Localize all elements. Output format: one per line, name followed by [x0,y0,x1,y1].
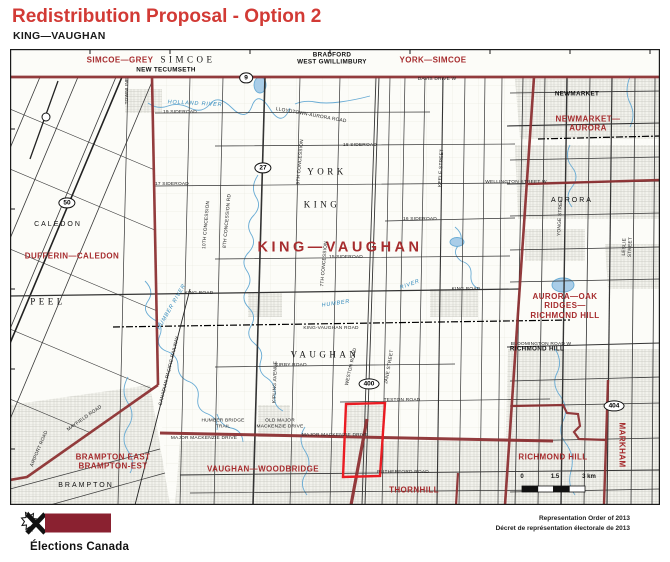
map-road-label: OLD MAJOR MACKENZIE DRIVE [257,418,304,429]
region-label-king: KING [304,200,341,211]
page-subtitle: KING—VAUGHAN [13,30,106,42]
highway-shield-27: 27 [254,162,271,173]
map-road-label: KING-VAUGHAN ROAD [303,326,358,332]
map-road-label: HUMBER BRIDGE TRAIL [201,418,244,429]
town-label-bradford-west-gwillimbury: BRADFORD WEST GWILLIMBURY [297,52,367,67]
district-label-king-vaughan: KING—VAUGHAN [258,239,423,256]
map-road-label: JANE STREET [384,349,396,384]
map-road-label: BLOOMINGTON ROAD W [511,342,572,348]
district-label-markham: MARKHAM [617,422,626,467]
map-road-label: 16 SIDEROAD [403,217,437,223]
map-road-label: AIRPORT ROAD [30,430,50,468]
credit-line-en: Representation Order of 2013 [496,514,630,524]
map-road-label: 9TH CONCESSION [296,139,306,185]
scale-bar-label: 1.5 [551,474,559,480]
scale-bar-label: 3 km [582,474,596,480]
credit-line-fr: Décret de représentation électorale de 2… [496,524,630,534]
map-road-label: KIPLING AVENUE [272,361,279,403]
town-label-caledon: CALEDON [34,221,82,229]
region-label-vaughan: VAUGHAN [291,350,360,361]
map-road-label: 19 SIDEROAD [163,110,197,116]
highway-shield-9: 9 [239,72,253,83]
map-road-label: YONGE STREET [557,196,565,236]
map-road-label: DAVIS DRIVE W [418,77,457,83]
map-road-label: MAJOR MACKENZIE DRIVE [302,433,368,439]
map-road-label: 17 SIDEROAD [155,182,189,188]
map-road-label: KIRBY ROAD [275,363,307,369]
map-road-label: RUTHERFORD ROAD [377,470,429,476]
map-road-label: WESTON ROAD [345,348,359,387]
map-road-label: 8TH CONCESSION RD [223,194,233,249]
map-road-label: WELLINGTON STREET W [485,180,546,186]
region-label-peel: PEEL [30,297,66,308]
district-label-simcoe-grey: SIMCOE—GREY [87,55,154,64]
scale-bar-label: 0 [520,474,523,480]
map-road-label: CANADIAN PACIFIC RAILWAY [159,336,182,407]
elections-canada-logo-mark [14,511,118,536]
map-labels-layer: SIMCOE—GREYYORK—SIMCOEDUFFERIN—CALEDONNE… [10,49,660,505]
town-label-richmond-hill-black: RICHMOND HILL [510,345,564,352]
town-label-aurora: AURORA [551,197,593,205]
town-label-brampton: BRAMPTON [58,482,114,490]
highway-shield-50: 50 [58,197,75,208]
town-label-newmarket: NEWMARKET [555,90,599,97]
region-label-simcoe: SIMCOE [160,55,215,66]
map-road-label: MAYFIELD ROAD [66,405,103,433]
map-road-label: KING ROAD [452,287,481,293]
district-label-brampton-east: BRAMPTON EAST BRAMPTON-EST [76,453,151,472]
district-label-york-simcoe: YORK—SIMCOE [399,55,466,64]
district-label-newmarket-aurora: NEWMARKET— AURORA [556,115,621,134]
district-label-thornhill: THORNHILL [389,485,439,494]
district-label-vaughan-woodbridge: VAUGHAN—WOODBRIDGE [207,464,319,473]
map-road-label: 15 SIDEROAD [329,255,363,261]
water-label-humber-river: HUMBER RIVER [156,283,188,331]
town-label-new-tecumseth: NEW TECUMSETH [136,66,196,73]
map-road-label: KEELE STREET [438,149,446,187]
page-title: Redistribution Proposal - Option 2 [12,6,321,28]
highway-shield-404: 404 [604,400,625,411]
map-road-label: LESLIE STREET [622,231,635,264]
elections-canada-logo: Élections Canada [14,511,129,553]
water-label-river: RIVER [399,278,421,291]
map-canvas: SIMCOE—GREYYORK—SIMCOEDUFFERIN—CALEDONNE… [10,49,660,505]
document-page: Redistribution Proposal - Option 2 KING—… [0,0,670,562]
map-credits: Representation Order of 2013 Décret de r… [496,514,630,535]
water-label-humber: HUMBER [321,299,350,309]
logo-flag-bar [45,514,111,533]
map-road-label: 7TH CONCESSION [320,241,330,287]
water-label-holland-river: HOLLAND RIVER [168,99,223,108]
map-road-label: LLOYDTOWN-AURORA ROAD [275,107,346,125]
elections-canada-logo-text: Élections Canada [30,541,129,553]
district-label-aurora-oak-ridges-richmond-hill: AURORA—OAK RIDGES— RICHMOND HILL [518,292,613,320]
map-road-label: 18 SIDEROAD [343,143,377,149]
district-label-dufferin-caledon: DUFFERIN—CALEDON [25,251,119,260]
ballot-x-icon [27,514,45,533]
map-road-label: KING ROAD [185,291,214,297]
map-road-label: TESTON ROAD [384,398,421,404]
highway-shield-400: 400 [359,378,380,389]
map-road-label: TOWNLINE [125,78,131,105]
map-road-label: 10TH CONCESSION [202,201,212,250]
district-label-richmond-hill: RICHMOND HILL [518,452,587,461]
map-road-label: MAJOR MACKENZIE DRIVE [171,436,237,442]
region-label-york: YORK [307,167,347,178]
